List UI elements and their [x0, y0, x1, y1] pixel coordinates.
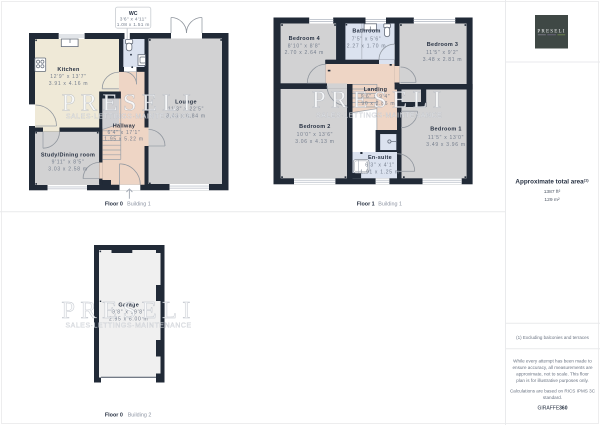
svg-text:Bedroom 2: Bedroom 2: [299, 124, 330, 130]
svg-text:SALES·LETTINGS·MAINTENANCE: SALES·LETTINGS·MAINTENANCE: [66, 113, 192, 120]
svg-text:approximate, not to scale. Thi: approximate, not to scale. This floor: [516, 372, 589, 377]
svg-text:(1) Excluding balconies and te: (1) Excluding balconies and terraces: [516, 335, 590, 340]
svg-text:8'10" x 8'8": 8'10" x 8'8": [288, 44, 321, 50]
svg-text:3.06 x 4.13 m: 3.06 x 4.13 m: [295, 139, 334, 145]
svg-text:En-suite: En-suite: [368, 155, 392, 161]
svg-text:3.03 x 2.58 m: 3.03 x 2.58 m: [48, 166, 87, 172]
svg-text:1387 ft²: 1387 ft²: [544, 189, 561, 195]
svg-text:SALES·LETTINGS·MAINTENANCE: SALES·LETTINGS·MAINTENANCE: [65, 323, 191, 330]
svg-text:3'6" x 4'11": 3'6" x 4'11": [120, 17, 147, 23]
svg-text:12'9" x 13'7": 12'9" x 13'7": [50, 74, 87, 80]
svg-text:PRESELI: PRESELI: [537, 28, 565, 34]
svg-text:Study/Dining room: Study/Dining room: [41, 153, 95, 159]
svg-text:Calculations are based on RICS: Calculations are based on RICS IPMS 3C: [510, 388, 596, 393]
svg-text:Approximate total area(1): Approximate total area(1): [515, 178, 589, 186]
svg-text:Floor 0: Floor 0: [105, 202, 123, 208]
svg-text:Building 1: Building 1: [127, 202, 151, 208]
svg-text:plan is for illustrative purpo: plan is for illustrative purposes only.: [516, 378, 588, 383]
svg-text:Floor 0: Floor 0: [105, 413, 123, 419]
svg-text:Kitchen: Kitchen: [57, 67, 80, 73]
svg-text:6'4" x 17'1": 6'4" x 17'1": [107, 130, 140, 136]
svg-text:9'11" x 8'5": 9'11" x 8'5": [52, 160, 85, 166]
svg-text:Hallway: Hallway: [113, 124, 136, 130]
svg-text:GIRAFFE360: GIRAFFE360: [537, 406, 567, 412]
svg-text:10'0" x 13'6": 10'0" x 13'6": [297, 132, 334, 138]
svg-text:Bathroom: Bathroom: [352, 29, 380, 35]
svg-text:3.91 x 4.16 m: 3.91 x 4.16 m: [49, 81, 88, 87]
svg-text:standard.: standard.: [543, 395, 562, 400]
svg-text:3.48 x 2.81 m: 3.48 x 2.81 m: [423, 57, 462, 63]
svg-text:6'3" x 4'1": 6'3" x 4'1": [365, 163, 395, 169]
svg-text:129 m²: 129 m²: [544, 197, 560, 203]
svg-text:Bedroom 1: Bedroom 1: [430, 127, 461, 133]
svg-text:While every attempt has been m: While every attempt has been made to: [513, 359, 592, 364]
svg-text:Building 1: Building 1: [378, 202, 402, 208]
svg-text:2.70 x 2.64 m: 2.70 x 2.64 m: [285, 50, 324, 56]
svg-text:SALES·LETTINGS·MAINTENANCE: SALES·LETTINGS·MAINTENANCE: [316, 113, 442, 120]
svg-text:11'5" x 9'2": 11'5" x 9'2": [426, 50, 459, 56]
svg-text:7'5" x 5'6": 7'5" x 5'6": [352, 37, 382, 43]
svg-text:Bedroom 3: Bedroom 3: [427, 42, 458, 48]
svg-text:2.27 x 1.70 m: 2.27 x 1.70 m: [347, 44, 386, 50]
svg-text:11'5" x 13'0": 11'5" x 13'0": [428, 135, 464, 141]
svg-text:Building 2: Building 2: [128, 413, 152, 419]
svg-text:1.95 x 5.22 m: 1.95 x 5.22 m: [104, 137, 143, 143]
svg-text:PRESELI: PRESELI: [312, 87, 446, 114]
svg-text:PRESELI: PRESELI: [61, 297, 195, 324]
svg-text:1.08 x 1.51 m: 1.08 x 1.51 m: [117, 22, 150, 28]
svg-text:PRESELI: PRESELI: [62, 89, 196, 116]
svg-text:ensure accuracy, all measureme: ensure accuracy, all measurements are: [512, 365, 593, 370]
svg-text:WC: WC: [129, 11, 138, 17]
svg-text:3.49 x 3.96 m: 3.49 x 3.96 m: [426, 142, 465, 148]
svg-text:Floor 1: Floor 1: [357, 202, 375, 208]
svg-text:Bedroom 4: Bedroom 4: [289, 36, 321, 42]
svg-text:1.91 x 1.25 m: 1.91 x 1.25 m: [360, 169, 399, 175]
